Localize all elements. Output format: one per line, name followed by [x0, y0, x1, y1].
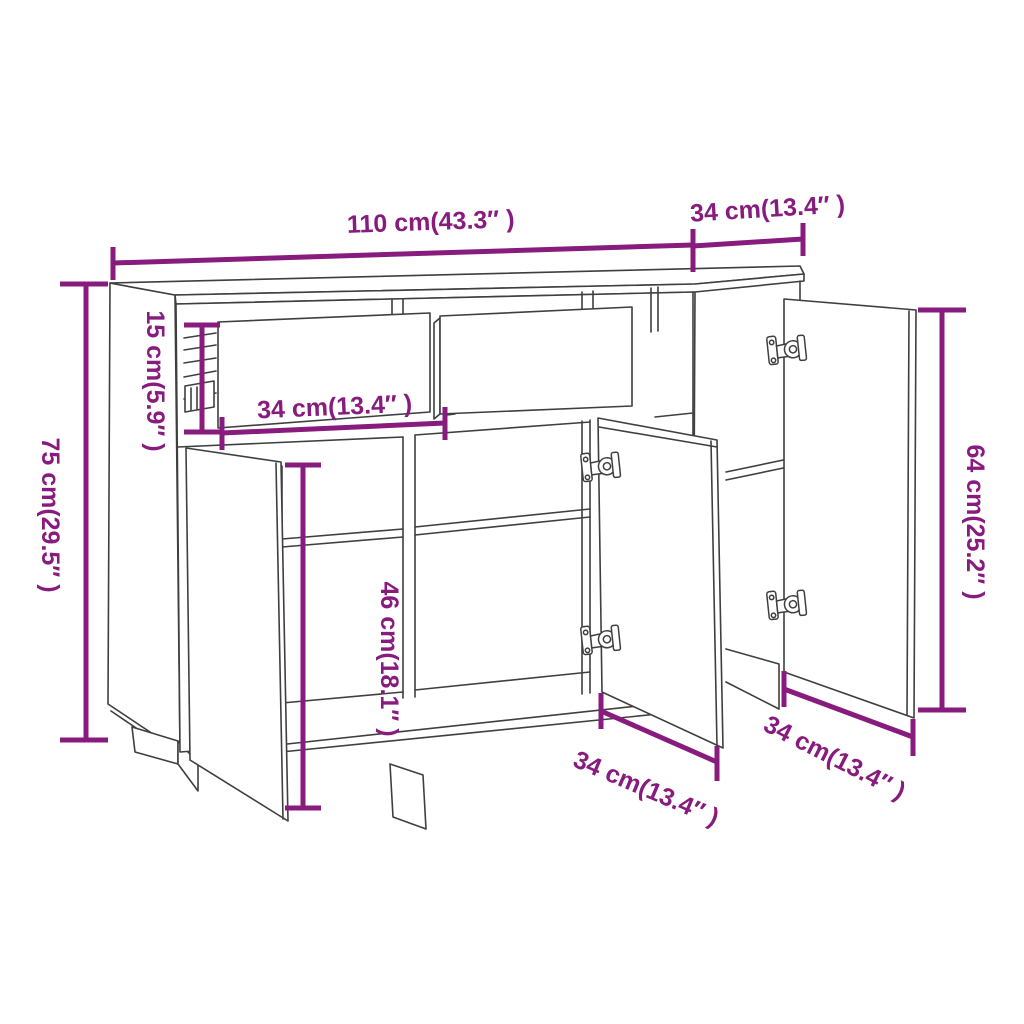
- left-door: [186, 448, 288, 821]
- label-right-door-height: 64 cm(25.2″ ): [961, 444, 989, 599]
- label-drawer-height: 15 cm(5.9″ ): [141, 310, 169, 451]
- label-interior-height: 46 cm(18.1″ ): [375, 581, 403, 736]
- drawer-2-front: [440, 307, 632, 414]
- label-top-width: 110 cm(43.3″ ): [346, 205, 515, 239]
- dimension-diagram: 110 cm(43.3″ ) 34 cm(13.4″ ) 75 cm(29.5″…: [0, 0, 1024, 1024]
- sideboard-line-drawing: 110 cm(43.3″ ) 34 cm(13.4″ ) 75 cm(29.5″…: [0, 0, 1024, 1024]
- label-overall-height: 75 cm(29.5″ ): [36, 437, 64, 592]
- right-door: [784, 299, 916, 718]
